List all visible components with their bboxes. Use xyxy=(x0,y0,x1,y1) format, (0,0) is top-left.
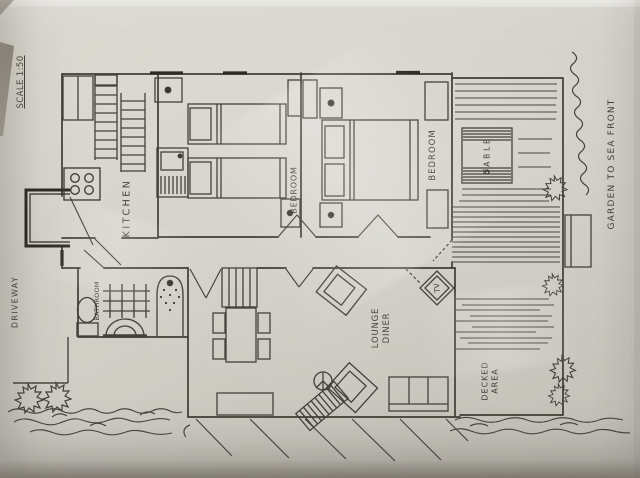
tv-label: TV xyxy=(432,283,442,294)
lounge-furniture xyxy=(213,266,454,431)
deck-planks xyxy=(452,84,560,349)
hedge-line xyxy=(571,52,589,195)
garden-bench-icon xyxy=(565,215,591,267)
sofa-icon xyxy=(296,382,348,431)
photo-top-edge xyxy=(0,0,640,7)
bedroom2-furniture xyxy=(303,80,448,228)
scale-text: SCALE 1:50 xyxy=(16,55,26,108)
table-label: TABLE xyxy=(483,136,492,173)
stove-icon xyxy=(64,168,100,200)
sofa-icon xyxy=(389,377,448,411)
hall-steps xyxy=(222,268,257,307)
bedroom-right-label: BEDROOM xyxy=(428,129,438,180)
floor-plan-photo: SCALE 1:50 DRIVEWAY KITCHEN BEDROOM BEDR… xyxy=(0,0,640,478)
kitchen-units xyxy=(63,75,145,172)
sideboard-icon xyxy=(217,393,273,415)
lounge-label-line1: LOUNGE xyxy=(371,308,382,348)
decked-label-line2: AREA xyxy=(491,361,501,400)
floor-plan-drawing xyxy=(0,0,640,478)
photo-right-shade xyxy=(634,0,640,478)
dining-table-icon xyxy=(226,308,256,362)
basin-icon xyxy=(106,319,144,336)
scale-label: SCALE 1:50 xyxy=(16,55,26,108)
armchair-icon xyxy=(316,266,366,315)
driveway-label: DRIVEWAY xyxy=(11,276,20,328)
lounge-label-line2: DINER xyxy=(382,308,393,348)
kitchen-label: KITCHEN xyxy=(122,179,133,238)
lounge-diner-label: LOUNGE DINER xyxy=(371,308,393,348)
decked-label-line1: DECKED xyxy=(481,361,491,400)
decked-area-label: DECKED AREA xyxy=(481,361,502,400)
bedroom-middle-label: BEDROOM xyxy=(290,166,299,213)
bedroom1-furniture xyxy=(155,78,301,227)
garden-label: GARDEN TO SEA FRONT xyxy=(607,99,617,230)
photo-bottom-shadow xyxy=(0,460,640,478)
patio-hatching xyxy=(184,419,468,461)
side-table-icon xyxy=(314,372,332,390)
towel-rack-icon xyxy=(103,284,150,318)
bathroom-label: BATHROOM xyxy=(93,281,101,320)
